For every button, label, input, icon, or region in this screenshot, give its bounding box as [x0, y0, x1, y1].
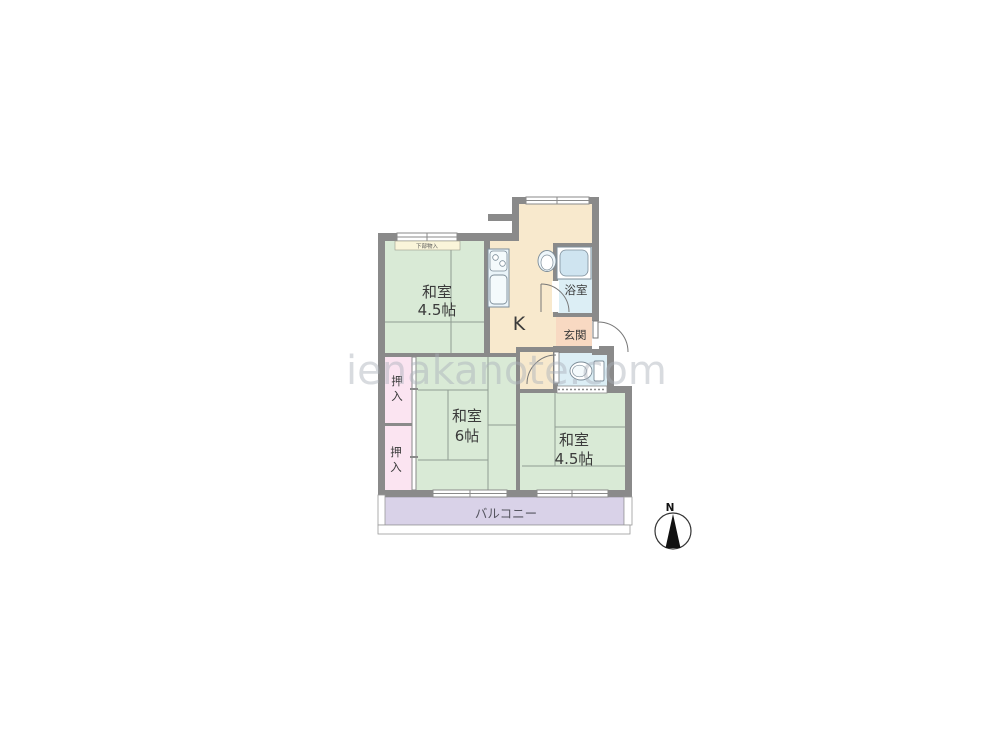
label-entrance: 玄関: [564, 328, 587, 342]
wall-bathroom-top: [553, 243, 599, 247]
label-washitsu-center-size: 6帖: [455, 427, 480, 445]
label-closet-lower-1: 押: [390, 445, 402, 459]
label-washitsu-center-name: 和室: [452, 407, 482, 425]
window-balcony-left: [433, 490, 507, 497]
bathtub-icon: [557, 247, 591, 279]
label-washitsu-top-size: 4.5帖: [418, 301, 457, 319]
window-kitchen-top: [526, 197, 589, 204]
wall-facade-stub: [488, 214, 519, 221]
label-washitsu-right-size: 4.5帖: [555, 450, 594, 468]
window-room1-top: [397, 233, 457, 241]
floorplan-page: 下部物入: [0, 0, 1000, 750]
wall-closet-divider: [381, 423, 414, 426]
under-window-storage-label: 下部物入: [416, 242, 439, 250]
kitchen-counter: [488, 249, 509, 307]
label-kitchen: K: [513, 313, 526, 335]
floor-plan-svg: 下部物入: [0, 0, 1000, 750]
wall-outer-right-lower: [625, 386, 632, 497]
watermark: ienakanote.com: [346, 348, 667, 394]
label-balcony: バルコニー: [475, 506, 537, 521]
window-balcony-right: [537, 490, 608, 497]
label-washitsu-right-name: 和室: [559, 431, 589, 449]
label-washitsu-top-name: 和室: [422, 283, 452, 301]
wall-outer-right-upper: [592, 197, 599, 317]
wash-basin-icon: [538, 251, 556, 272]
label-closet-lower-2: 入: [390, 460, 402, 474]
compass: N: [655, 502, 691, 549]
compass-north-label: N: [666, 502, 675, 514]
kitchen-sink-icon: [490, 275, 507, 304]
under-window-storage: 下部物入: [395, 241, 460, 250]
stove-burners-icon: [490, 251, 507, 271]
label-bathroom: 浴室: [565, 283, 588, 297]
compass-needle-icon: [666, 514, 681, 548]
